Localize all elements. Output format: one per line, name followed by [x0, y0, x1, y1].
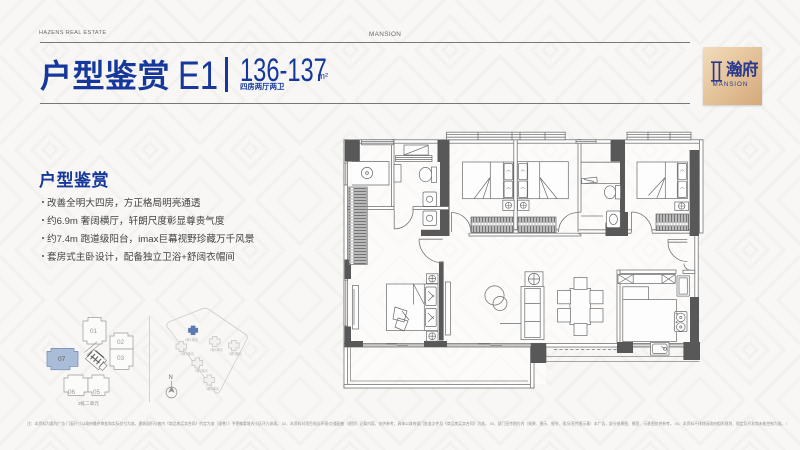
svg-text:03: 03 — [117, 355, 125, 362]
svg-text:2栋二单元: 2栋二单元 — [78, 400, 99, 407]
svg-text:06: 06 — [68, 389, 76, 396]
svg-text:2栋1单元: 2栋1单元 — [210, 347, 224, 352]
svg-text:01: 01 — [90, 328, 98, 335]
svg-text:3栋1单元: 3栋1单元 — [206, 386, 220, 391]
svg-text:3栋3单元: 3栋3单元 — [229, 351, 243, 356]
svg-text:2栋1单元: 2栋1单元 — [185, 337, 199, 342]
svg-text:05: 05 — [93, 389, 101, 396]
svg-text:07: 07 — [58, 356, 66, 363]
svg-text:2栋4单元: 2栋4单元 — [181, 351, 195, 356]
svg-text:02: 02 — [117, 339, 125, 346]
svg-text:3栋2单元: 3栋2单元 — [195, 368, 209, 373]
svg-text:N: N — [169, 375, 173, 381]
